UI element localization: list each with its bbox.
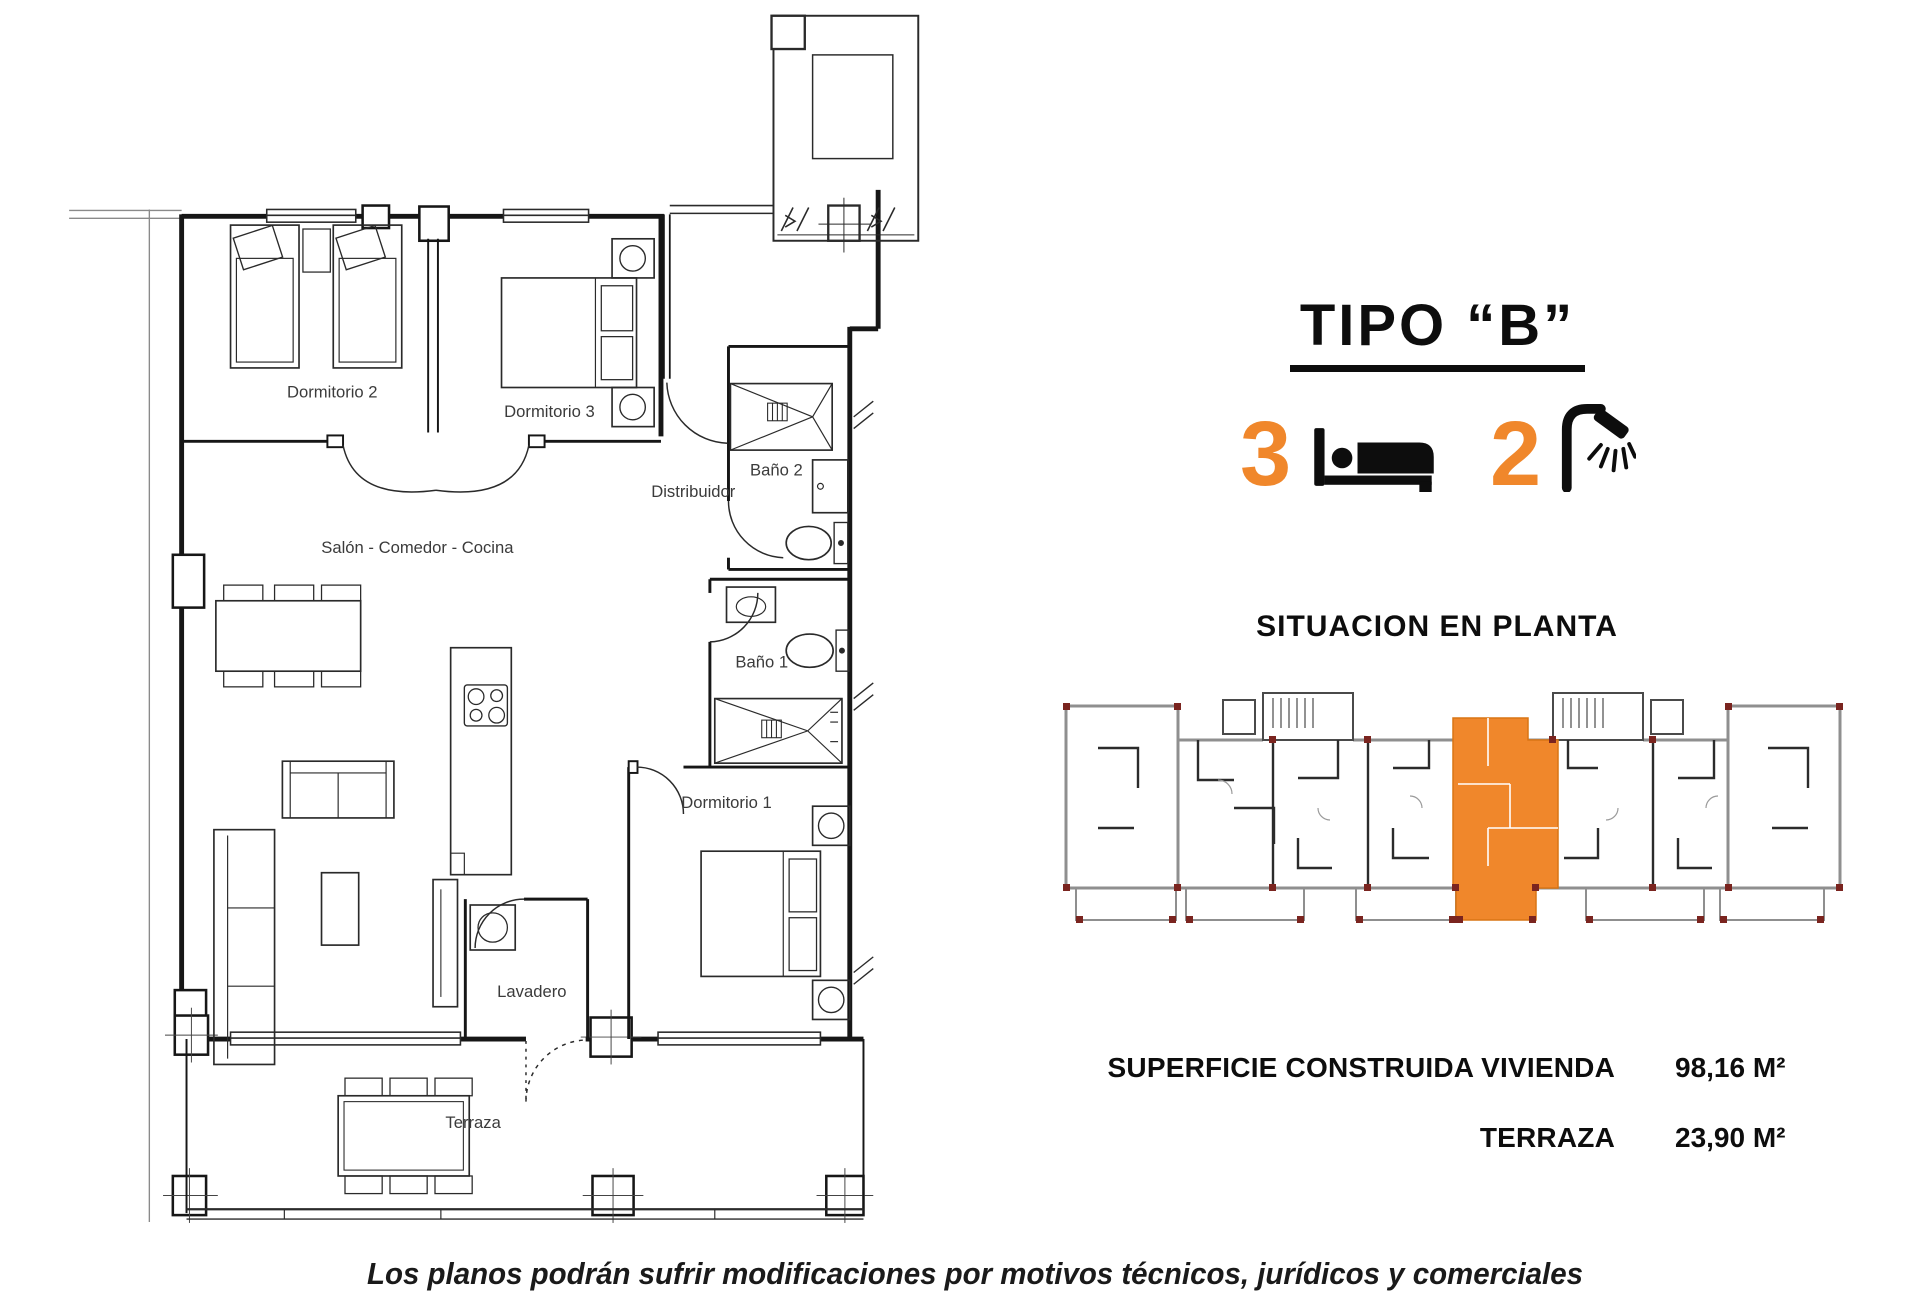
door-jambs xyxy=(327,435,637,772)
party-wall-lines xyxy=(69,209,182,1222)
highlighted-unit xyxy=(1453,718,1558,920)
section-marks xyxy=(854,401,874,984)
site-plan xyxy=(1058,688,1848,926)
label-distribuidor: Distribuidor xyxy=(651,482,736,501)
area-label-vivienda: SUPERFICIE CONSTRUIDA VIVIENDA xyxy=(1035,1052,1615,1084)
label-bano-1: Baño 1 xyxy=(735,652,788,671)
room-labels: Dormitorio 2 Dormitorio 3 Baño 2 Distrib… xyxy=(287,382,803,1132)
stair-core xyxy=(670,16,918,253)
area-value-terraza: 23,90 M² xyxy=(1675,1122,1786,1154)
furniture xyxy=(214,225,850,1193)
area-label-terraza: TERRAZA xyxy=(1035,1122,1615,1154)
site-terraces xyxy=(1076,888,1824,920)
label-lavadero: Lavadero xyxy=(497,982,566,1001)
label-bano-2: Baño 2 xyxy=(750,461,803,480)
situation-heading: SITUACION EN PLANTA xyxy=(1137,610,1737,644)
label-dormitorio-3: Dormitorio 3 xyxy=(504,402,595,421)
area-value-vivienda: 98,16 M² xyxy=(1675,1052,1786,1084)
floor-plan: Dormitorio 2 Dormitorio 3 Baño 2 Distrib… xyxy=(30,0,930,1270)
columns xyxy=(173,206,864,1216)
area-row-vivienda: SUPERFICIE CONSTRUIDA VIVIENDA 98,16 M² xyxy=(1035,1052,1825,1088)
bathrooms-count: 2 xyxy=(1490,408,1541,500)
plan-type-title: TIPO “B” xyxy=(1150,292,1725,372)
label-salon: Salón - Comedor - Cocina xyxy=(321,538,514,557)
area-row-terraza: TERRAZA 23,90 M² xyxy=(1035,1122,1825,1158)
windows xyxy=(231,209,821,1044)
footer-disclaimer: Los planos podrán sufrir modificaciones … xyxy=(49,1256,1902,1292)
label-dormitorio-2: Dormitorio 2 xyxy=(287,382,378,401)
shower-icon xyxy=(1558,398,1636,492)
exterior-walls xyxy=(182,190,879,1041)
label-dormitorio-1: Dormitorio 1 xyxy=(681,793,772,812)
interior-walls xyxy=(184,214,864,1213)
terrace-railing xyxy=(187,1209,864,1219)
bedrooms-count: 3 xyxy=(1240,408,1291,500)
bed-icon xyxy=(1312,424,1436,492)
label-terraza: Terraza xyxy=(445,1113,501,1132)
